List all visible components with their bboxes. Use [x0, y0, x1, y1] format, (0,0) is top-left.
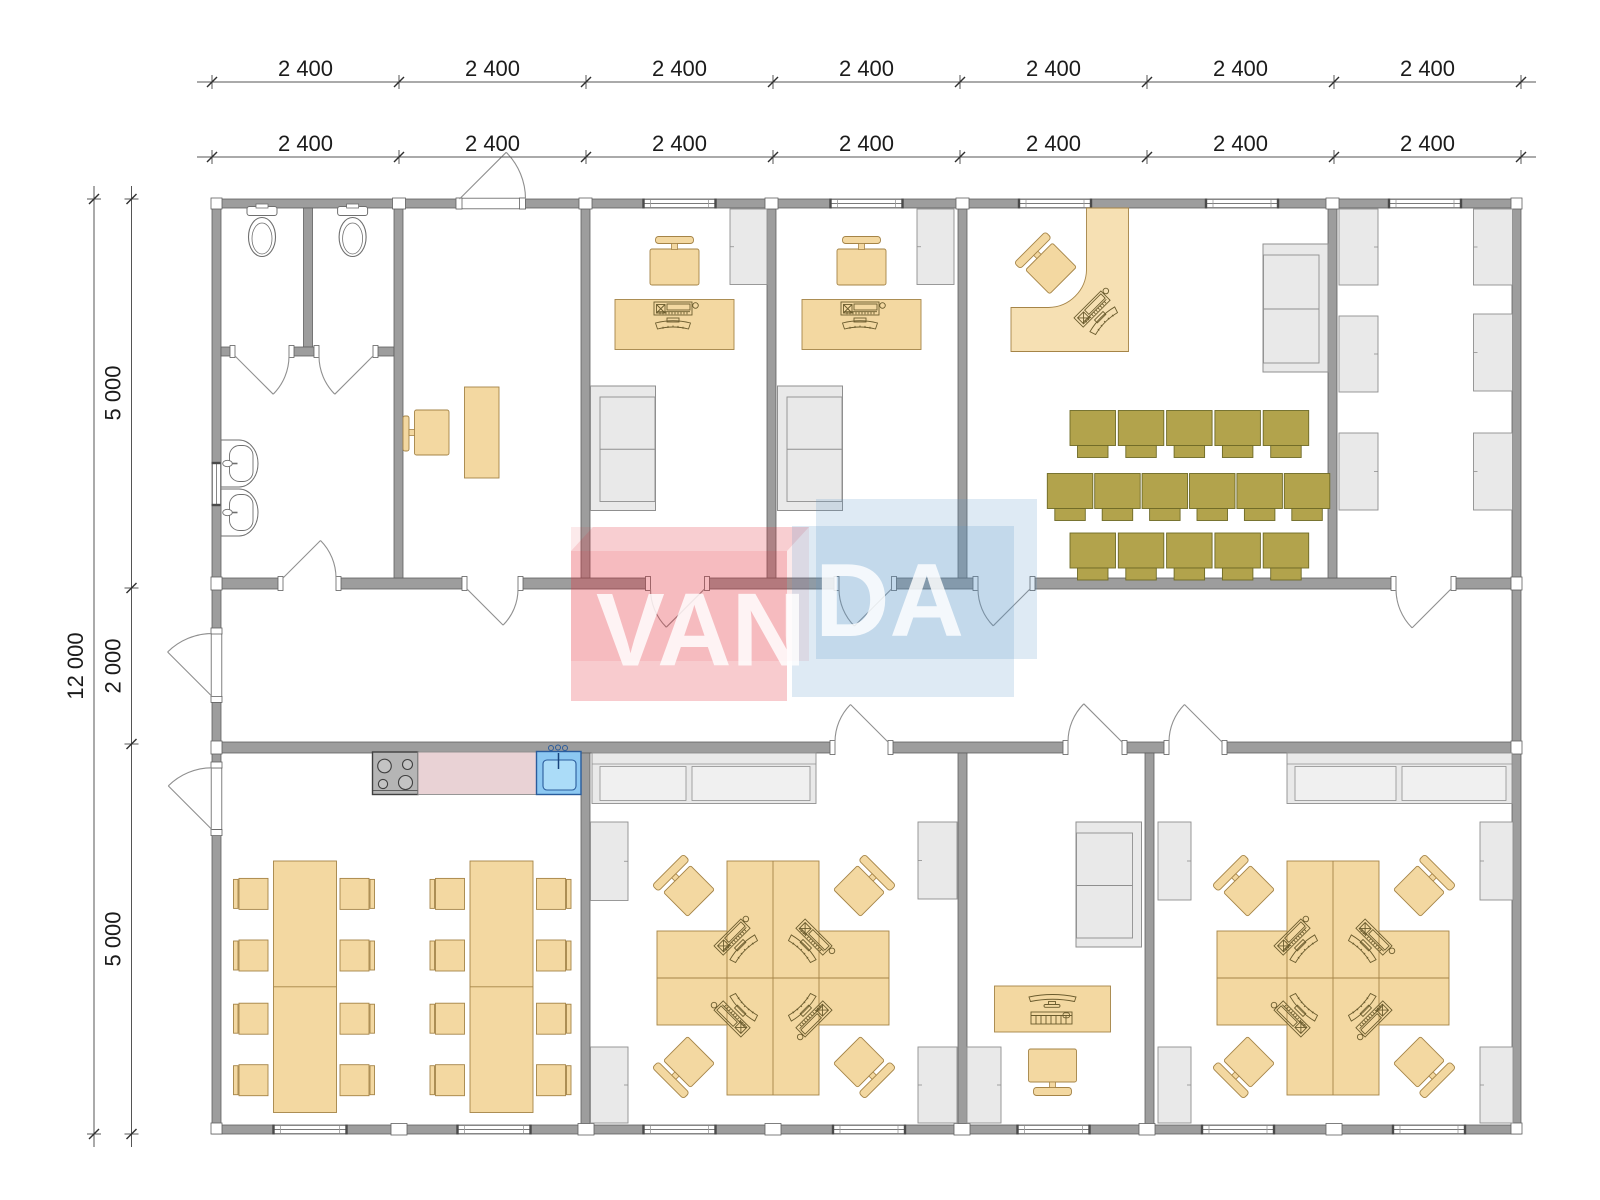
svg-text:2 400: 2 400	[652, 56, 707, 81]
svg-text:2 000: 2 000	[101, 638, 126, 693]
svg-text:2 400: 2 400	[465, 131, 520, 156]
svg-text:DA: DA	[815, 543, 964, 659]
svg-text:5 000: 5 000	[101, 365, 126, 420]
svg-text:2 400: 2 400	[839, 56, 894, 81]
svg-text:2 400: 2 400	[465, 56, 520, 81]
svg-text:2 400: 2 400	[278, 56, 333, 81]
svg-text:2 400: 2 400	[1400, 131, 1455, 156]
svg-text:2 400: 2 400	[278, 131, 333, 156]
svg-text:2 400: 2 400	[1026, 56, 1081, 81]
svg-text:12 000: 12 000	[63, 632, 88, 699]
svg-text:VAN: VAN	[596, 573, 806, 689]
svg-text:2 400: 2 400	[839, 131, 894, 156]
svg-text:2 400: 2 400	[652, 131, 707, 156]
svg-text:5 000: 5 000	[101, 911, 126, 966]
svg-text:2 400: 2 400	[1213, 56, 1268, 81]
svg-text:2 400: 2 400	[1400, 56, 1455, 81]
svg-text:2 400: 2 400	[1026, 131, 1081, 156]
svg-text:2 400: 2 400	[1213, 131, 1268, 156]
